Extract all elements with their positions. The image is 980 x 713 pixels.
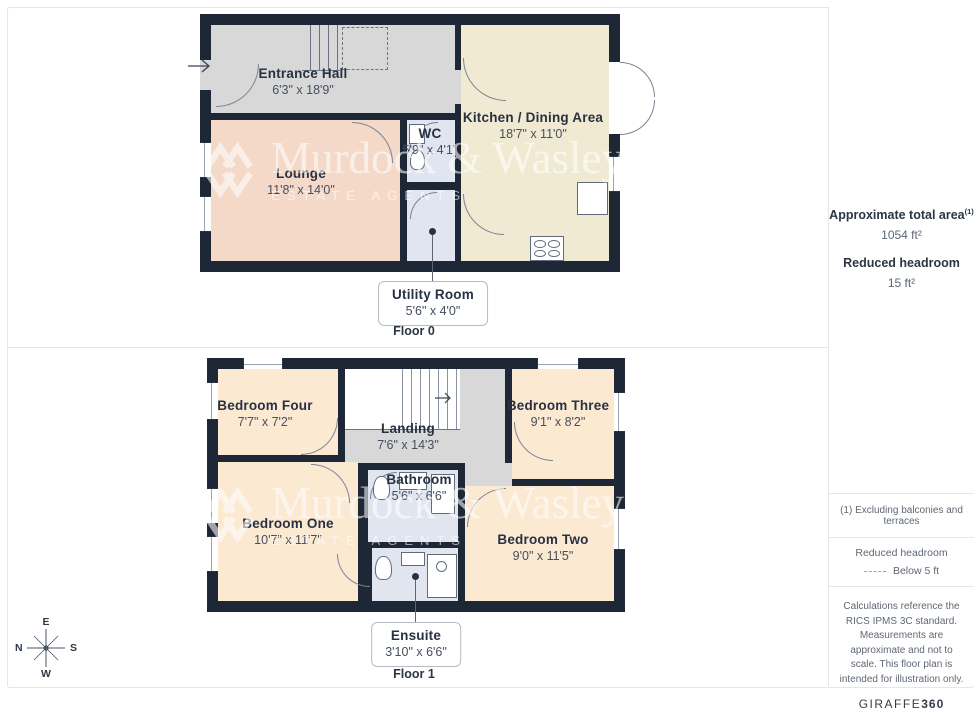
floor0-label: Floor 0	[393, 324, 435, 338]
legend-row: Below 5 ft	[829, 565, 974, 577]
label-kitchen: Kitchen / Dining Area 18'7" x 11'0"	[463, 110, 603, 141]
brand-suffix: 360	[921, 697, 944, 711]
room-dims: 9'1" x 8'2"	[507, 415, 609, 429]
disclaimer-box: Calculations reference the RICS IPMS 3C …	[829, 586, 974, 686]
ensuite-toilet	[375, 556, 392, 580]
window	[200, 142, 211, 178]
hall-kitchen-opening	[455, 70, 461, 104]
label-wc: WC 5'9" x 4'1"	[403, 126, 458, 157]
room-name: Ensuite	[385, 628, 447, 643]
kitchen-hob	[530, 236, 564, 261]
utility-leader-line	[432, 235, 433, 281]
floor1-label: Floor 1	[393, 667, 435, 681]
room-dims: 5'9" x 4'1"	[403, 143, 458, 157]
window	[200, 196, 211, 232]
compass-rose: E S W N	[17, 619, 75, 677]
room-dims: 5'6" x 6'6"	[386, 489, 451, 503]
label-bedroom-three: Bedroom Three 9'1" x 8'2"	[507, 398, 609, 429]
ensuite-shower	[427, 554, 457, 598]
window	[243, 358, 283, 369]
entry-arrow-icon	[188, 59, 214, 73]
total-area-label: Approximate total area(1)	[829, 207, 974, 222]
info-sidebar: Approximate total area(1) 1054 ft² Reduc…	[828, 7, 974, 686]
reduced-headroom-value: 15 ft²	[829, 276, 974, 290]
room-name: Bedroom Three	[507, 398, 609, 413]
legend-box: Reduced headroom Below 5 ft	[829, 537, 974, 586]
legend-value: Below 5 ft	[893, 565, 939, 577]
room-name: Bedroom Four	[217, 398, 312, 413]
room-dims: 7'7" x 7'2"	[217, 415, 312, 429]
stairs-overhead-outline	[342, 27, 388, 70]
window	[537, 358, 579, 369]
giraffe360-logo: GIRAFFE360	[839, 696, 964, 713]
stairs-direction-arrow-icon	[435, 392, 455, 404]
window	[207, 488, 218, 524]
window	[207, 536, 218, 572]
room-dims: 18'7" x 11'0"	[463, 127, 603, 141]
room-name: WC	[403, 126, 458, 141]
room-name: Kitchen / Dining Area	[463, 110, 603, 125]
legend-title: Reduced headroom	[829, 547, 974, 559]
room-name: Bedroom One	[242, 516, 333, 531]
reduced-headroom-label: Reduced headroom	[829, 256, 974, 270]
label-landing: Landing 7'6" x 14'3"	[377, 421, 439, 452]
room-dims: 10'7" x 11'7"	[242, 533, 333, 547]
footnote-text: (1) Excluding balconies and terraces	[829, 505, 974, 527]
room-name: Entrance Hall	[259, 66, 348, 81]
room-dims: 6'3" x 18'9"	[259, 83, 348, 97]
footnote-box: (1) Excluding balconies and terraces	[829, 493, 974, 537]
room-landing-arm	[465, 463, 512, 487]
french-door-opening	[609, 62, 620, 134]
label-bathroom: Bathroom 5'6" x 6'6"	[386, 472, 451, 503]
disclaimer-text: Calculations reference the RICS IPMS 3C …	[839, 600, 964, 687]
room-dims: 3'10" x 6'6"	[385, 645, 447, 659]
label-bedroom-two: Bedroom Two 9'0" x 11'5"	[497, 532, 588, 563]
utility-callout-anchor	[429, 228, 436, 235]
room-name: Bathroom	[386, 472, 451, 487]
stairs-floor0	[302, 25, 340, 71]
label-entrance-hall: Entrance Hall 6'3" x 18'9"	[259, 66, 348, 97]
compass-letter-top: E	[42, 616, 49, 628]
total-area-label-text: Approximate total area	[829, 208, 964, 222]
label-bedroom-one: Bedroom One 10'7" x 11'7"	[242, 516, 333, 547]
room-dims: 9'0" x 11'5"	[497, 549, 588, 563]
floor-section-divider	[7, 347, 828, 348]
window	[609, 156, 620, 192]
total-area-block: Approximate total area(1) 1054 ft² Reduc…	[829, 207, 974, 290]
room-name: Bedroom Two	[497, 532, 588, 547]
compass-letter-right: S	[70, 642, 77, 654]
compass-letter-left: N	[15, 642, 23, 654]
label-lounge: Lounge 11'8" x 14'0"	[267, 166, 335, 197]
room-name: Utility Room	[392, 287, 474, 302]
room-dims: 7'6" x 14'3"	[377, 438, 439, 452]
room-dims: 11'8" x 14'0"	[267, 183, 335, 197]
window	[614, 392, 625, 432]
ensuite-callout: Ensuite 3'10" x 6'6"	[371, 622, 461, 667]
room-name: Lounge	[267, 166, 335, 181]
utility-callout: Utility Room 5'6" x 4'0"	[378, 281, 488, 326]
room-dims: 5'6" x 4'0"	[392, 304, 474, 318]
ensuite-leader-line	[415, 580, 416, 622]
total-area-value: 1054 ft²	[829, 228, 974, 242]
kitchen-sink-unit	[577, 182, 608, 215]
total-area-superscript: (1)	[965, 207, 974, 216]
brand-name: GIRAFFE	[859, 697, 922, 711]
dashed-line-sample	[864, 571, 886, 572]
ensuite-callout-anchor	[412, 573, 419, 580]
label-bedroom-four: Bedroom Four 7'7" x 7'2"	[217, 398, 312, 429]
window	[614, 508, 625, 550]
ensuite-sink	[401, 552, 425, 566]
compass-letter-bottom: W	[41, 668, 51, 680]
room-name: Landing	[377, 421, 439, 436]
